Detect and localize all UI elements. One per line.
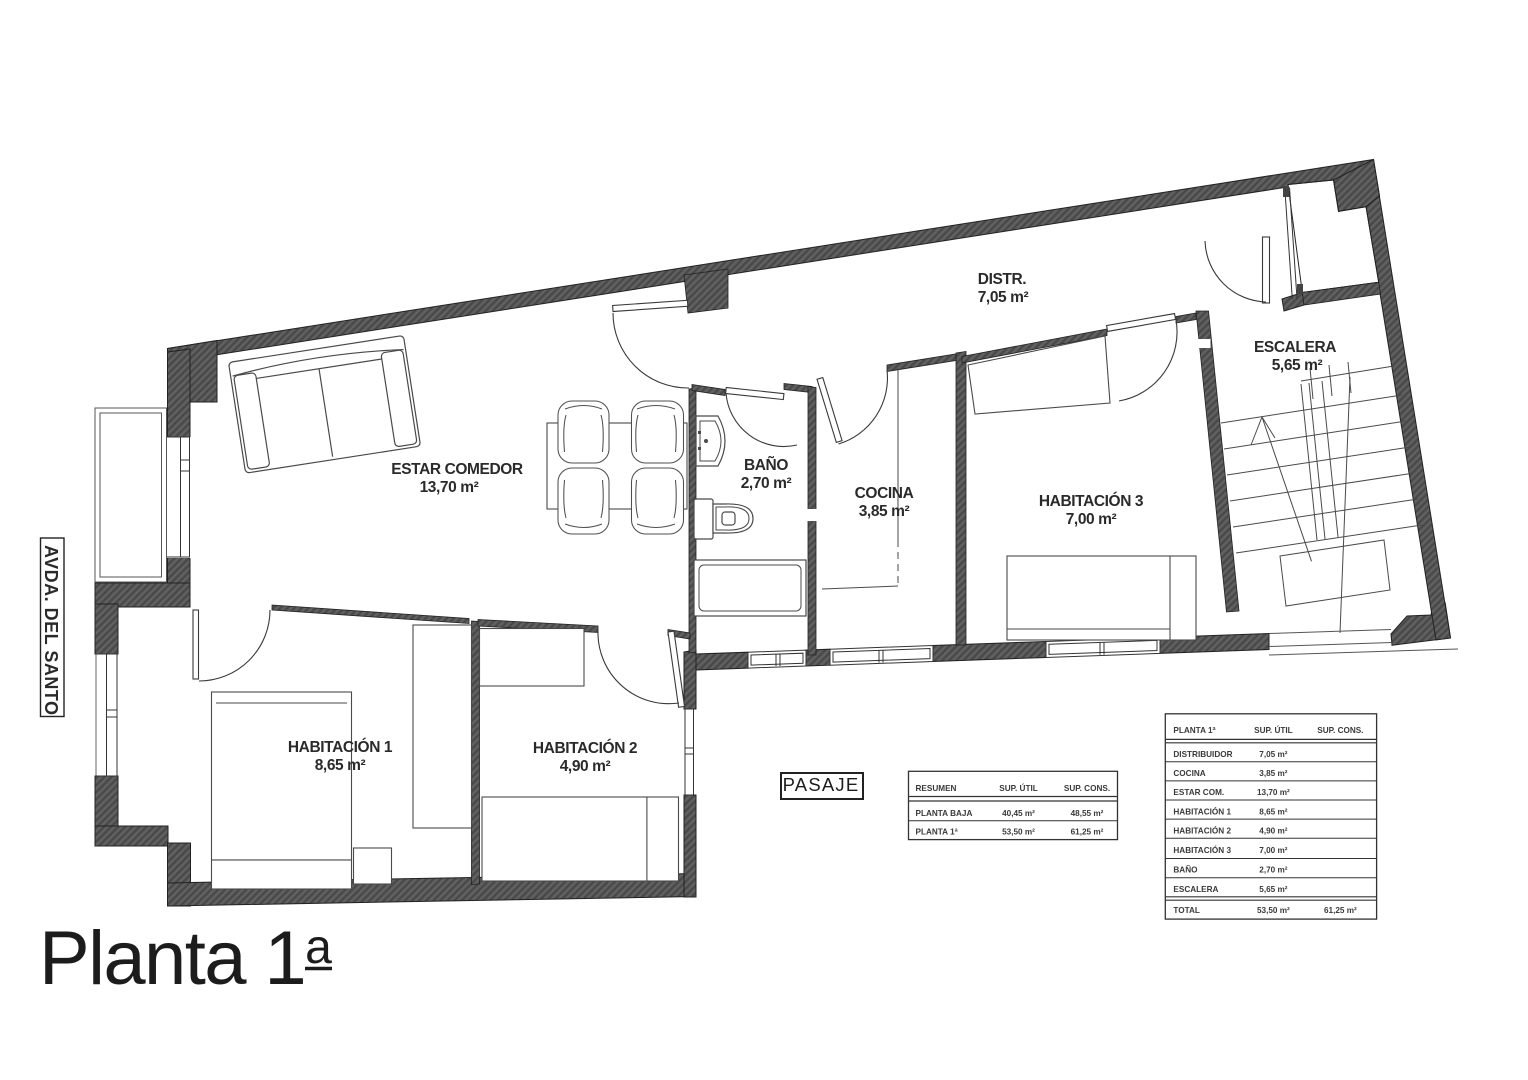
svg-text:TOTAL: TOTAL: [1173, 906, 1200, 915]
svg-text:8,65 m²: 8,65 m²: [315, 757, 366, 774]
svg-text:7,00 m²: 7,00 m²: [1066, 511, 1117, 528]
svg-text:PLANTA BAJA: PLANTA BAJA: [916, 809, 973, 818]
svg-text:DISTRIBUIDOR: DISTRIBUIDOR: [1173, 750, 1232, 759]
svg-text:13,70 m²: 13,70 m²: [1257, 788, 1290, 797]
svg-text:DISTR.: DISTR.: [978, 271, 1027, 288]
svg-text:PASAJE: PASAJE: [783, 774, 860, 795]
svg-text:61,25 m²: 61,25 m²: [1324, 906, 1357, 915]
svg-text:2,70 m²: 2,70 m²: [741, 475, 792, 492]
svg-text:RESUMEN: RESUMEN: [916, 784, 957, 793]
svg-text:BAÑO: BAÑO: [1173, 865, 1198, 875]
svg-text:SUP. ÚTIL: SUP. ÚTIL: [999, 782, 1038, 793]
svg-text:SUP. CONS.: SUP. CONS.: [1317, 726, 1363, 735]
svg-text:HABITACIÓN 1: HABITACIÓN 1: [1173, 806, 1231, 817]
svg-text:40,45 m²: 40,45 m²: [1002, 809, 1035, 818]
svg-text:AVDA. DEL SANTO: AVDA. DEL SANTO: [41, 545, 61, 716]
svg-text:2,70 m²: 2,70 m²: [1259, 866, 1287, 875]
svg-text:5,65 m²: 5,65 m²: [1272, 357, 1323, 374]
svg-text:3,85 m²: 3,85 m²: [859, 503, 910, 520]
svg-text:ESCALERA: ESCALERA: [1254, 339, 1336, 356]
svg-text:Planta 1a: Planta 1a: [39, 916, 332, 1001]
svg-text:ESCALERA: ESCALERA: [1173, 885, 1218, 894]
svg-text:7,05 m²: 7,05 m²: [978, 289, 1029, 306]
svg-text:7,00 m²: 7,00 m²: [1259, 846, 1287, 855]
svg-text:HABITACIÓN 2: HABITACIÓN 2: [1173, 825, 1231, 836]
svg-text:13,70 m²: 13,70 m²: [420, 479, 479, 496]
svg-text:HABITACIÓN 3: HABITACIÓN 3: [1039, 492, 1144, 510]
svg-text:PLANTA 1ª: PLANTA 1ª: [1173, 726, 1216, 735]
svg-text:4,90 m²: 4,90 m²: [1259, 827, 1287, 836]
svg-text:SUP. CONS.: SUP. CONS.: [1064, 784, 1110, 793]
svg-text:COCINA: COCINA: [1173, 769, 1205, 778]
svg-text:5,65 m²: 5,65 m²: [1259, 885, 1287, 894]
svg-text:HABITACIÓN 3: HABITACIÓN 3: [1173, 844, 1231, 855]
svg-text:48,55 m²: 48,55 m²: [1071, 809, 1104, 818]
svg-text:ESTAR COM.: ESTAR COM.: [1173, 788, 1224, 797]
svg-text:61,25 m²: 61,25 m²: [1071, 828, 1104, 837]
svg-text:PLANTA 1ª: PLANTA 1ª: [916, 828, 959, 837]
svg-text:8,65 m²: 8,65 m²: [1259, 808, 1287, 817]
svg-text:HABITACIÓN 2: HABITACIÓN 2: [533, 739, 637, 757]
svg-text:ESTAR COMEDOR: ESTAR COMEDOR: [391, 461, 523, 478]
svg-text:COCINA: COCINA: [855, 485, 914, 502]
svg-text:4,90 m²: 4,90 m²: [560, 758, 611, 775]
svg-text:7,05 m²: 7,05 m²: [1259, 750, 1287, 759]
svg-text:SUP. ÚTIL: SUP. ÚTIL: [1254, 724, 1293, 735]
svg-text:53,50 m²: 53,50 m²: [1257, 906, 1290, 915]
svg-text:3,85 m²: 3,85 m²: [1259, 769, 1287, 778]
svg-text:BAÑO: BAÑO: [744, 456, 788, 474]
svg-text:HABITACIÓN 1: HABITACIÓN 1: [288, 738, 393, 756]
svg-text:53,50 m²: 53,50 m²: [1002, 828, 1035, 837]
